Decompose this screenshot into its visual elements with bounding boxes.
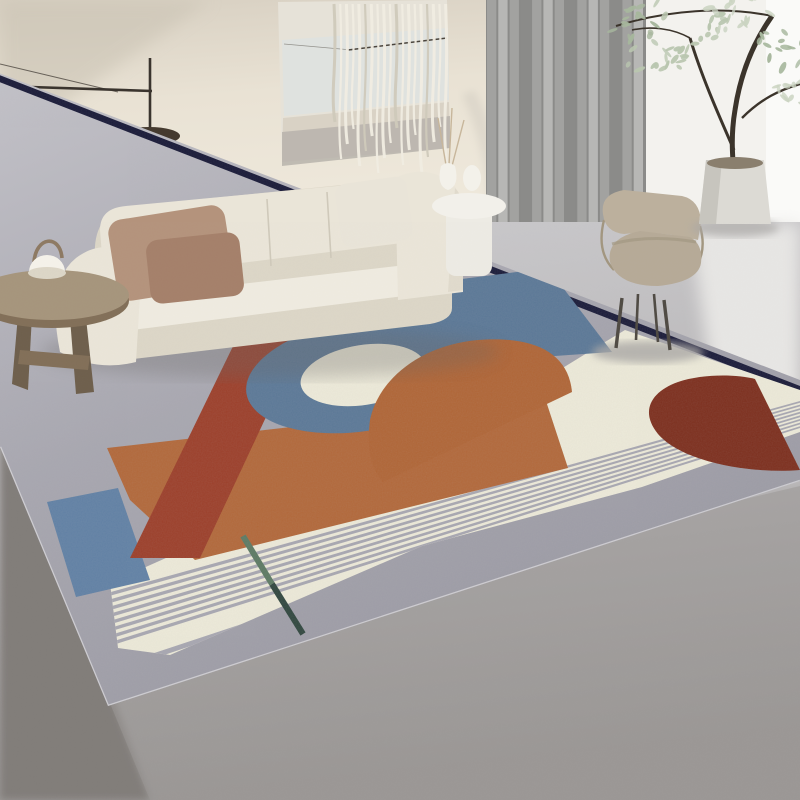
macrame-strand (395, 4, 397, 128)
macrame-strand (432, 4, 434, 142)
curtain-fold (566, 0, 575, 248)
macrame-strand (333, 4, 335, 122)
white-table-top (432, 193, 506, 219)
living-room-scene (0, 0, 800, 800)
floor-texture (0, 222, 800, 800)
macrame-strand (420, 4, 422, 172)
egg-sculpture (463, 165, 481, 191)
curtain-fold (577, 0, 586, 251)
planter-soil (707, 157, 763, 169)
macrame-strand (408, 4, 410, 150)
macrame-strand (383, 4, 385, 158)
curtain-fold (555, 0, 564, 245)
macrame-strand (370, 4, 372, 136)
macrame-strand (346, 4, 348, 144)
curtain-fold (543, 0, 552, 251)
macrame-strand (358, 4, 360, 166)
macrame-strand (445, 4, 447, 164)
curtain-fold (510, 0, 519, 251)
curtain-fold (521, 0, 530, 245)
curtain-fold (589, 0, 598, 245)
curtain-fold (532, 0, 541, 248)
scene-canvas (0, 0, 800, 800)
